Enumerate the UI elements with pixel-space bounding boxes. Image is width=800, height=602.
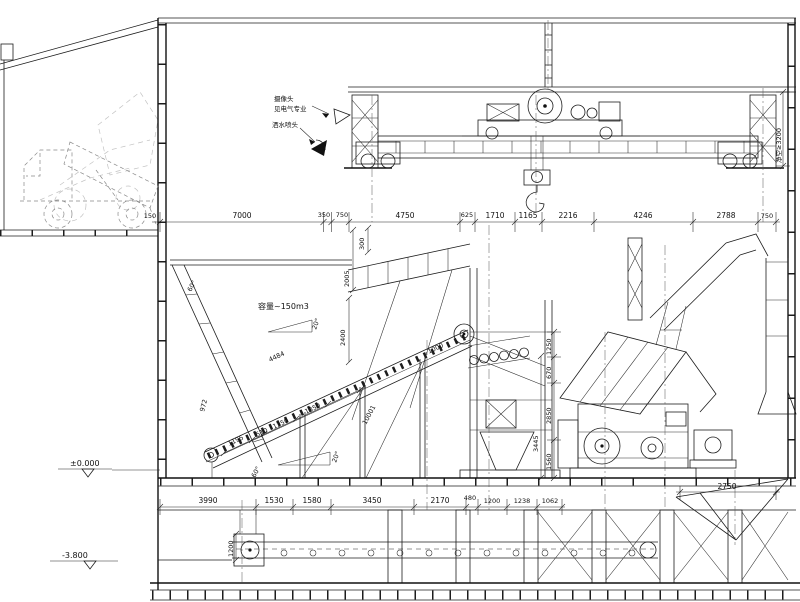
- level-ground: ±0.000: [70, 459, 100, 468]
- dim-bottom-3990: 3990: [198, 496, 217, 505]
- crane-hook-assembly: [524, 136, 550, 212]
- dim-3445: 3445: [532, 435, 540, 452]
- dim-1350a: 1350: [271, 417, 289, 431]
- angle-60-upper: 60°: [186, 279, 198, 293]
- dim-top-4246: 4246: [633, 211, 652, 220]
- crusher-station-section-drawing: 摄像头 见电气专业 洒水喷头 容量~150m3 净空≥3200 ±0.000 -…: [0, 0, 800, 602]
- dim-bottom-1580: 1580: [302, 496, 321, 505]
- dim-top-750b: 750: [761, 212, 773, 220]
- dim-1350b: 1350: [303, 402, 321, 416]
- dim-top-7000: 7000: [232, 211, 251, 220]
- dim-2750: 2750: [717, 482, 736, 491]
- dim-972: 972: [198, 398, 209, 412]
- dim-2400: 2400: [339, 329, 347, 346]
- dim-bottom-480: 480: [464, 494, 476, 502]
- dim-670: 670: [545, 367, 553, 379]
- dim-2850: 2850: [545, 407, 553, 424]
- annotation-leaders: [300, 106, 350, 156]
- dim-top-625: 625: [461, 211, 473, 219]
- dim-bottom-1238: 1238: [514, 497, 531, 505]
- dim-2005: 2005: [343, 270, 351, 287]
- dim-top-1710: 1710: [485, 211, 504, 220]
- truck-silhouette: [20, 142, 158, 228]
- angle-60-lower: 60°: [250, 465, 262, 479]
- dim-bottom-1530: 1530: [264, 496, 283, 505]
- overhead-crane: [344, 89, 784, 168]
- angle-20-upper: 20°: [310, 317, 321, 331]
- text-labels: 摄像头 见电气专业 洒水喷头 容量~150m3 净空≥3200 ±0.000 -…: [62, 94, 783, 560]
- dim-bottom-3450: 3450: [362, 496, 381, 505]
- dim-300: 300: [358, 238, 366, 250]
- dim-bottom-1062: 1062: [542, 497, 559, 505]
- dim-1560: 1560: [545, 453, 553, 470]
- dimension-lines: [50, 89, 790, 569]
- dim-top-2216: 2216: [558, 211, 577, 220]
- capacity-label: 容量~150m3: [258, 301, 309, 311]
- building-structure: [0, 18, 796, 590]
- dim-1000: ~1000: [421, 341, 444, 358]
- exhaust-ducting: [628, 234, 796, 414]
- dim-1250: 1250: [545, 338, 553, 355]
- angle-20-lower: 20°: [330, 450, 341, 464]
- faint-sketch: [40, 92, 158, 221]
- dim-top-150: 150: [144, 212, 156, 220]
- level-pit: -3.800: [62, 551, 88, 560]
- dim-1200-pit: 1200: [227, 540, 235, 557]
- dim-4484: 4484: [267, 350, 285, 364]
- dim-bottom-1200: 1200: [484, 497, 501, 505]
- sprinkler-label: 洒水喷头: [272, 120, 299, 129]
- dim-10001: 10001: [361, 404, 378, 426]
- pit-conveyor: [232, 510, 658, 566]
- camera-label-line2: 见电气专业: [274, 104, 307, 113]
- dim-top-750a: 750: [336, 211, 348, 219]
- dim-top-4750: 4750: [395, 211, 414, 220]
- dim-top-1165: 1165: [518, 211, 537, 220]
- crusher-unit: [558, 302, 736, 478]
- dim-1195: 1195: [226, 434, 244, 448]
- dim-top-350: 350: [318, 211, 330, 219]
- clearance-dim: 净空≥3200: [774, 128, 783, 163]
- dim-bottom-2170: 2170: [430, 496, 449, 505]
- camera-label-line1: 摄像头: [274, 94, 294, 103]
- dim-top-2788: 2788: [716, 211, 735, 220]
